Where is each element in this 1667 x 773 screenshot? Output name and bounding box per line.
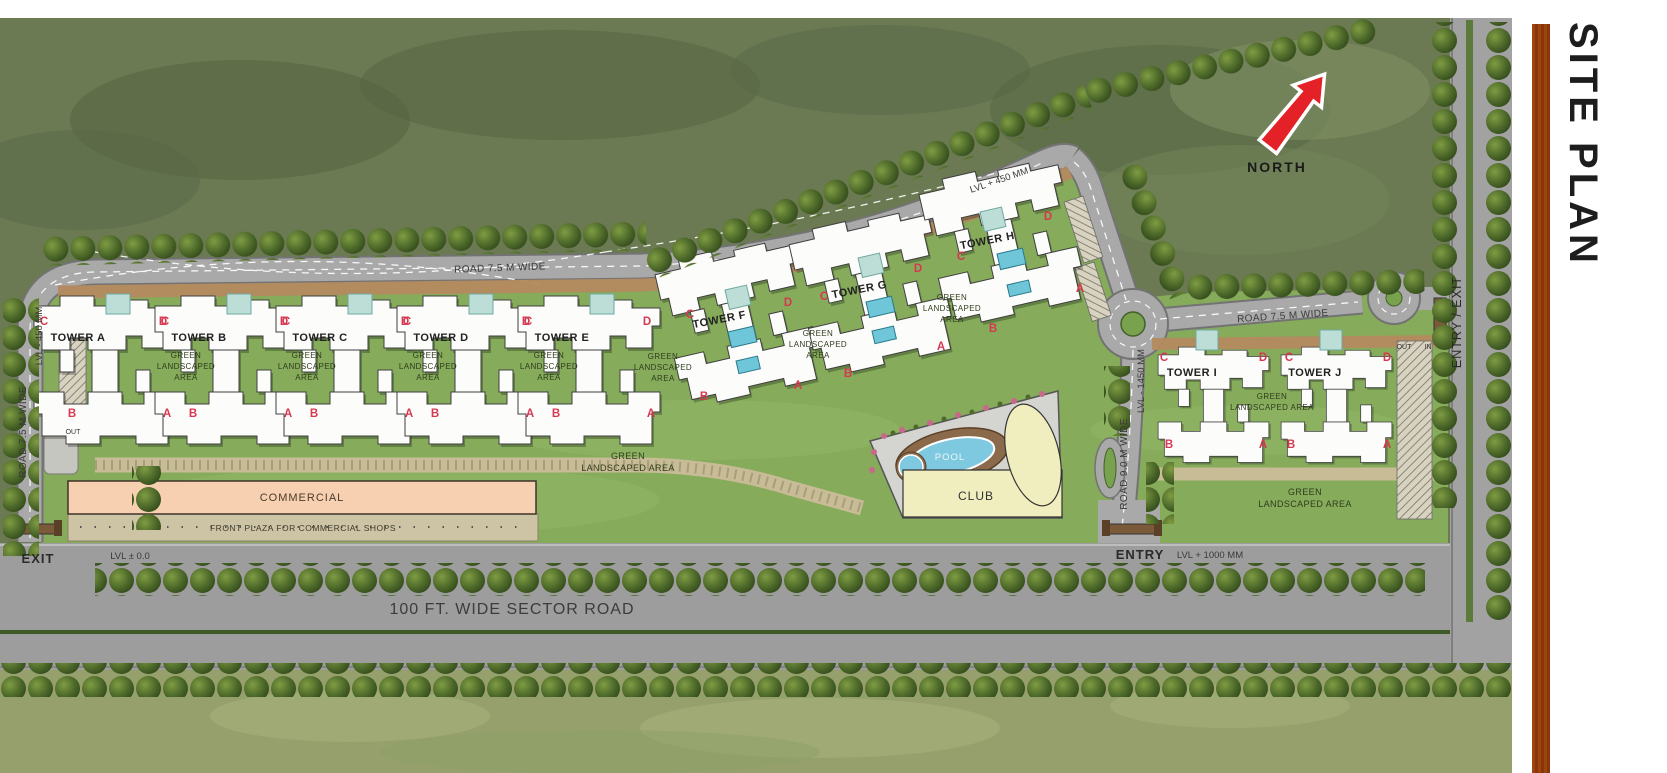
svg-text:C: C — [403, 316, 411, 328]
svg-text:B: B — [1165, 439, 1173, 451]
entry-gate — [1106, 524, 1160, 534]
svg-text:A: A — [794, 380, 802, 392]
svg-text:B: B — [310, 408, 318, 420]
svg-text:LANDSCAPED: LANDSCAPED — [157, 362, 215, 371]
svg-text:AREA: AREA — [940, 315, 964, 324]
tower-a-label: TOWER A — [51, 332, 106, 344]
svg-text:D: D — [1259, 352, 1267, 364]
svg-text:C: C — [820, 291, 828, 303]
north-label: NORTH — [1247, 159, 1307, 175]
svg-text:LANDSCAPED: LANDSCAPED — [634, 363, 692, 372]
tower-b-label: TOWER B — [171, 332, 226, 344]
svg-text:GREEN: GREEN — [611, 451, 645, 461]
svg-text:GREEN: GREEN — [1288, 487, 1322, 497]
svg-text:B: B — [989, 323, 997, 335]
svg-text:GREEN: GREEN — [534, 351, 564, 360]
club-label: CLUB — [958, 489, 994, 503]
site-plan-title: SITE PLAN — [1560, 22, 1605, 762]
top-margin — [0, 0, 1512, 18]
svg-text:C: C — [282, 316, 290, 328]
entry-label: ENTRY — [1116, 547, 1165, 562]
svg-text:B: B — [552, 408, 560, 420]
tower-d-label: TOWER D — [413, 332, 468, 344]
svg-text:GREEN: GREEN — [171, 351, 201, 360]
svg-text:A: A — [1076, 283, 1084, 295]
svg-text:LANDSCAPED AREA: LANDSCAPED AREA — [581, 463, 675, 473]
site-plan-drawing: TOWER A TOWER B TOWER C TOWER D TOWER E … — [0, 0, 1512, 773]
svg-text:D: D — [1044, 211, 1052, 223]
out-label-east: OUT — [1397, 344, 1413, 351]
out-label-west: OUT — [66, 429, 82, 436]
svg-text:B: B — [68, 408, 76, 420]
road-90-label: ROAD 9.0 M WIDE — [1119, 418, 1130, 510]
lvl-minus-450-label: LVL - 450 MM — [34, 307, 45, 366]
east-road-median — [1466, 20, 1473, 622]
svg-text:AREA: AREA — [295, 373, 319, 382]
sector-road-label: 100 FT. WIDE SECTOR ROAD — [389, 601, 634, 618]
parking-strip-east — [1397, 341, 1432, 519]
lvl-minus-1450-label: LVL - 1450 MM — [1136, 349, 1147, 413]
lvl-zero-label: LVL ± 0.0 — [110, 551, 150, 562]
svg-text:GREEN: GREEN — [413, 351, 443, 360]
svg-text:A: A — [1383, 439, 1391, 451]
svg-text:GREEN: GREEN — [648, 352, 678, 361]
svg-text:LANDSCAPED: LANDSCAPED — [278, 362, 336, 371]
svg-text:LANDSCAPED: LANDSCAPED — [923, 304, 981, 313]
svg-text:D: D — [643, 316, 651, 328]
svg-text:C: C — [161, 316, 169, 328]
svg-text:GREEN: GREEN — [937, 293, 967, 302]
sector-road-median — [0, 630, 1512, 634]
svg-text:GREEN: GREEN — [803, 329, 833, 338]
svg-text:LANDSCAPED: LANDSCAPED — [399, 362, 457, 371]
svg-text:AREA: AREA — [806, 351, 830, 360]
sector-road — [0, 543, 1512, 670]
svg-text:A: A — [526, 408, 534, 420]
exit-label: EXIT — [22, 551, 55, 566]
svg-text:B: B — [844, 368, 852, 380]
tower-e-label: TOWER E — [535, 332, 590, 344]
svg-text:LANDSCAPED: LANDSCAPED — [789, 340, 847, 349]
orange-divider-bar — [1532, 24, 1550, 773]
svg-text:B: B — [700, 391, 708, 403]
svg-text:C: C — [524, 316, 532, 328]
svg-text:B: B — [189, 408, 197, 420]
tower-i-label: TOWER I — [1167, 367, 1217, 379]
svg-text:AREA: AREA — [537, 373, 561, 382]
svg-text:D: D — [1383, 352, 1391, 364]
svg-text:C: C — [686, 309, 694, 321]
svg-text:C: C — [1160, 352, 1168, 364]
svg-text:LANDSCAPED AREA: LANDSCAPED AREA — [1258, 499, 1352, 509]
svg-text:AREA: AREA — [174, 373, 198, 382]
entry-exit-label: ENTRY / EXIT — [1450, 276, 1464, 368]
svg-text:A: A — [284, 408, 292, 420]
svg-text:LANDSCAPED: LANDSCAPED — [520, 362, 578, 371]
svg-text:B: B — [431, 408, 439, 420]
pool-label: POOL — [935, 452, 965, 463]
svg-text:C: C — [957, 251, 965, 263]
svg-text:A: A — [647, 408, 655, 420]
svg-text:GREEN: GREEN — [1257, 392, 1287, 401]
svg-text:A: A — [937, 341, 945, 353]
site-plan-screenshot: TOWER A TOWER B TOWER C TOWER D TOWER E … — [0, 0, 1667, 773]
tower-c-label: TOWER C — [292, 332, 347, 344]
svg-text:D: D — [914, 263, 922, 275]
svg-text:AREA: AREA — [651, 374, 675, 383]
svg-text:A: A — [405, 408, 413, 420]
svg-text:A: A — [163, 408, 171, 420]
front-plaza-label: FRONT PLAZA FOR COMMERCIAL SHOPS — [210, 523, 396, 533]
road-75-west-label: ROAD 7.5 M WIDE — [18, 386, 29, 478]
svg-text:LANDSCAPED AREA: LANDSCAPED AREA — [1230, 403, 1314, 412]
tower-j-label: TOWER J — [1288, 367, 1341, 379]
svg-text:D: D — [784, 297, 792, 309]
in-label-east: IN — [1425, 344, 1432, 351]
svg-text:C: C — [1285, 352, 1293, 364]
svg-text:A: A — [1259, 439, 1267, 451]
svg-text:AREA: AREA — [416, 373, 440, 382]
commercial-label: COMMERCIAL — [260, 492, 345, 504]
lvl-plus-1000-label: LVL + 1000 MM — [1177, 550, 1243, 561]
svg-text:B: B — [1287, 439, 1295, 451]
svg-text:GREEN: GREEN — [292, 351, 322, 360]
